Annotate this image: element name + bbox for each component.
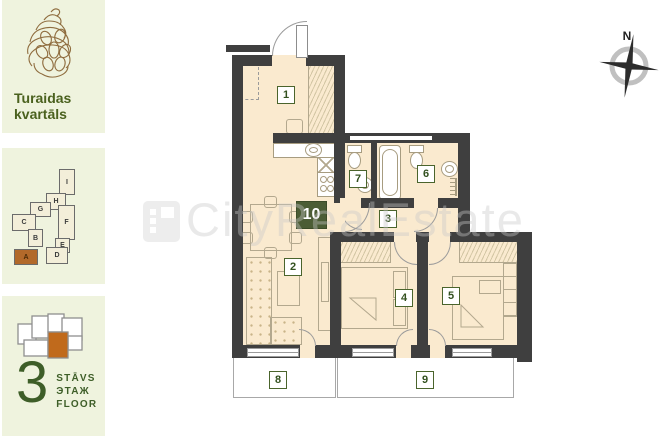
balcony-label-9: 9 — [416, 371, 434, 389]
dishwasher — [317, 157, 335, 173]
room-label-2: 2 — [284, 258, 302, 276]
stool — [286, 119, 303, 134]
sofa-chaise — [270, 317, 302, 345]
wall — [371, 143, 377, 198]
wall — [334, 55, 345, 143]
window — [247, 348, 299, 357]
kitchen-sink — [305, 143, 322, 157]
pillow — [479, 280, 501, 294]
wardrobe-bedroom4 — [334, 240, 391, 263]
room-label-1: 1 — [277, 86, 295, 104]
wall — [334, 143, 345, 203]
bedroom5-door-opening — [429, 232, 450, 242]
wall — [330, 232, 341, 358]
wall — [458, 133, 470, 242]
compass-north-label: N — [623, 29, 632, 43]
chair — [264, 196, 277, 208]
balcony-divider-post — [325, 352, 339, 358]
towel-rail — [450, 178, 457, 196]
room-label-4: 4 — [395, 289, 413, 307]
vent-strip — [350, 136, 432, 140]
living-corridor-opening — [334, 203, 345, 232]
wall — [226, 45, 270, 52]
room-label-7: 7 — [349, 170, 367, 188]
room-label-6: 6 — [417, 165, 435, 183]
dining-table — [250, 204, 292, 251]
watermark-logo — [143, 201, 180, 242]
balcony-door-opening — [430, 345, 445, 358]
room-label-3: 3 — [379, 210, 397, 228]
balcony-label-8: 8 — [269, 371, 287, 389]
floorplan: 1 2 3 4 5 6 7 8 9 10 N CityRealEstate — [0, 0, 670, 436]
bedside-drawers — [503, 263, 517, 317]
chair — [289, 232, 302, 244]
sofa — [246, 257, 272, 345]
compass: N — [598, 18, 660, 98]
bath-door-opening — [414, 198, 438, 208]
bedroom4-door-opening — [394, 232, 416, 242]
wall — [517, 232, 532, 362]
toilet — [348, 152, 361, 169]
room-label-5: 5 — [442, 287, 460, 305]
stove — [317, 172, 335, 197]
floorplan-page: Turaidas kvartāls I H G C B F E D A 3 — [0, 0, 670, 436]
tv — [321, 262, 329, 302]
balcony-door-opening — [396, 345, 411, 358]
coffee-table — [277, 271, 300, 306]
unit-label-10: 10 — [296, 201, 327, 229]
window — [452, 348, 492, 357]
washbasin — [441, 161, 458, 177]
window — [352, 348, 394, 357]
bathtub-inner — [382, 149, 398, 196]
balcony-door-opening — [300, 345, 315, 358]
wall — [232, 55, 243, 358]
wall — [417, 242, 428, 358]
wardrobe-bedroom5 — [459, 241, 519, 263]
wardrobe-hall — [308, 60, 335, 138]
entrance-door-arc — [272, 21, 307, 56]
